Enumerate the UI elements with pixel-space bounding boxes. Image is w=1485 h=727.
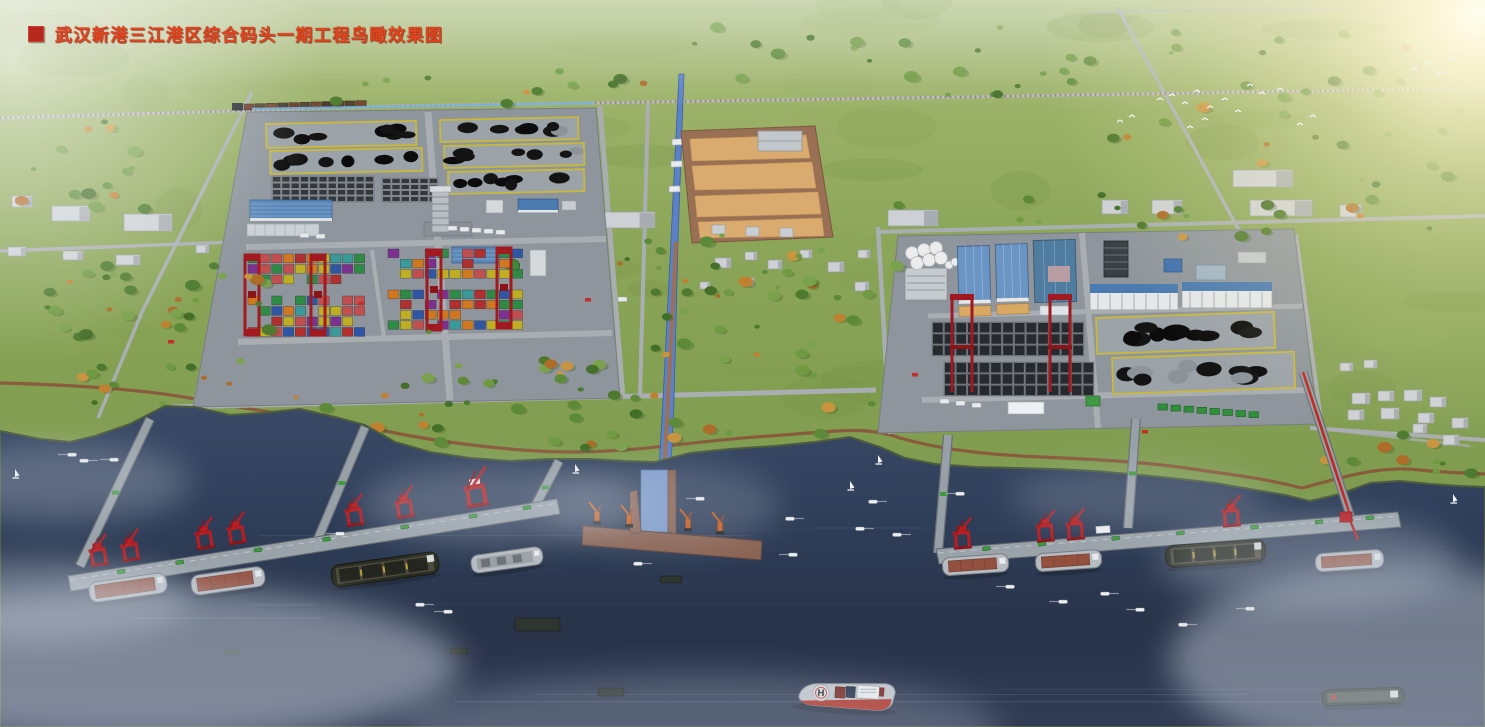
small-boat <box>1006 585 1015 589</box>
grid-base <box>382 178 438 202</box>
grass-patch <box>820 158 923 181</box>
container <box>260 265 270 274</box>
small-boat <box>1059 600 1068 604</box>
container <box>295 307 305 316</box>
grid-cell <box>1003 363 1013 372</box>
container <box>400 270 411 279</box>
container <box>331 328 341 337</box>
cargo <box>496 556 506 565</box>
car <box>912 373 918 377</box>
container <box>462 270 473 279</box>
hatch-cover <box>254 548 262 553</box>
container <box>331 275 341 284</box>
tree <box>834 295 842 301</box>
tree <box>644 238 652 244</box>
truck <box>448 226 457 231</box>
tree <box>807 341 816 347</box>
tree <box>795 349 808 358</box>
grid-cell <box>383 191 390 195</box>
building-side <box>727 259 731 268</box>
truck <box>972 403 981 408</box>
silo-building <box>905 268 947 300</box>
paved-lot <box>1048 266 1070 282</box>
tree <box>680 309 688 315</box>
rtg-beam <box>245 329 259 335</box>
tree <box>607 430 618 438</box>
grass-patch <box>991 171 1050 210</box>
tree <box>201 376 207 380</box>
grid-cell <box>338 177 345 182</box>
grid-cell <box>411 185 418 189</box>
container <box>272 265 282 274</box>
tree <box>544 359 557 368</box>
grid-cell <box>1027 323 1037 332</box>
grid-cell <box>319 190 326 195</box>
container <box>342 254 352 263</box>
tree <box>174 323 186 331</box>
tree <box>705 286 717 295</box>
wheelhouse <box>426 554 434 562</box>
container <box>499 270 510 279</box>
cargo <box>481 558 491 567</box>
pallet-stack <box>997 304 1029 315</box>
tree <box>1377 442 1392 453</box>
tree <box>893 201 904 209</box>
container <box>512 311 523 320</box>
grid-cell <box>347 177 354 182</box>
container <box>400 300 411 309</box>
field-shed <box>712 225 725 234</box>
container <box>295 296 305 305</box>
container <box>354 254 364 263</box>
dark-barge <box>660 576 682 583</box>
wheelhouse <box>255 570 262 577</box>
tree <box>1396 455 1409 465</box>
container <box>475 249 486 258</box>
tree <box>795 290 808 299</box>
green-truck <box>1197 407 1207 413</box>
building-side <box>840 263 844 272</box>
grid-cell <box>411 191 418 195</box>
container <box>331 265 341 274</box>
grid-cell <box>1003 323 1013 332</box>
grid-cell <box>1038 334 1048 343</box>
car <box>358 302 364 306</box>
grid-cell <box>957 386 967 395</box>
tree <box>834 314 846 323</box>
tree <box>868 401 876 407</box>
tree <box>817 247 825 253</box>
grid-cell <box>1026 363 1036 372</box>
grid-cell <box>1027 346 1037 355</box>
green-truck <box>1210 408 1220 414</box>
title-bar: 武汉新港三江港区综合码头一期工程鸟瞰效果图 <box>28 21 444 46</box>
tree <box>455 363 462 368</box>
tree <box>586 365 599 374</box>
truck <box>300 233 309 238</box>
grid-cell <box>1072 386 1082 395</box>
container <box>272 317 282 326</box>
container <box>475 300 486 309</box>
grid-cell <box>991 386 1001 395</box>
gantry-beam <box>950 345 974 349</box>
tree <box>255 301 262 306</box>
grid-cell <box>1060 386 1070 395</box>
container <box>342 265 352 274</box>
tree <box>381 393 389 399</box>
tree <box>662 352 670 358</box>
truck-on-trestle <box>339 481 346 485</box>
tree <box>890 261 904 271</box>
tree <box>615 442 628 451</box>
car <box>585 298 591 302</box>
tree <box>1433 469 1440 474</box>
tree <box>802 276 816 286</box>
grid-cell <box>310 177 317 182</box>
small-building <box>562 201 576 210</box>
grid-cell <box>430 179 437 183</box>
truck <box>316 234 325 239</box>
container <box>450 270 461 279</box>
tree <box>578 387 584 391</box>
tree <box>458 377 469 385</box>
silo <box>923 254 936 267</box>
container <box>272 296 282 305</box>
container <box>450 290 461 299</box>
grid-cell <box>1014 363 1024 372</box>
building-side <box>809 251 812 258</box>
grid-cell <box>1073 323 1083 332</box>
tree <box>548 436 561 445</box>
tree <box>617 261 623 265</box>
small-boat <box>444 610 453 614</box>
grid-cell <box>392 185 399 189</box>
tree <box>1023 195 1034 203</box>
tree <box>226 382 232 386</box>
grid-cell <box>420 197 427 201</box>
grid-cell <box>1014 386 1024 395</box>
tree <box>650 345 660 352</box>
small-boat <box>893 533 902 537</box>
green-kiosk <box>1086 396 1100 406</box>
cargo <box>512 554 522 563</box>
container <box>499 311 510 320</box>
rtg-beam <box>311 255 325 261</box>
gantry-beam <box>1048 294 1072 300</box>
container <box>512 321 523 330</box>
container <box>354 328 364 337</box>
tree <box>511 404 525 414</box>
grid-cell <box>1083 374 1093 383</box>
field-shed <box>746 227 759 236</box>
tree <box>419 413 424 417</box>
green-truck <box>1184 406 1194 412</box>
tree <box>422 373 435 382</box>
small-boat <box>416 603 425 607</box>
tree <box>667 433 681 443</box>
grid-cell <box>383 197 390 201</box>
tree <box>714 326 725 334</box>
container <box>283 317 293 326</box>
tree <box>186 364 196 371</box>
gate-building <box>530 250 546 276</box>
grid-cell <box>957 374 967 383</box>
container <box>400 311 411 320</box>
grid-cell <box>980 323 990 332</box>
grid-cell <box>1073 346 1083 355</box>
small-boat <box>789 553 798 557</box>
grid-cell <box>383 179 390 183</box>
container <box>295 317 305 326</box>
grid-cell <box>329 184 336 189</box>
grid-cell <box>392 179 399 183</box>
grid-cell <box>366 177 373 182</box>
grid-cell <box>366 184 373 189</box>
tree <box>568 401 580 410</box>
tree <box>719 233 725 237</box>
grass-patch <box>628 280 671 298</box>
tree <box>554 374 566 383</box>
field-shed <box>780 228 793 237</box>
grid-cell <box>411 179 418 183</box>
truck <box>472 228 481 233</box>
grid-cell <box>1003 386 1013 395</box>
grid-cell <box>366 190 373 195</box>
truck <box>618 297 627 302</box>
grid-cell <box>933 334 943 343</box>
truck <box>940 399 949 404</box>
container <box>400 290 411 299</box>
tree <box>795 253 802 258</box>
field-strip <box>692 162 816 190</box>
grid-cell <box>338 184 345 189</box>
container <box>260 307 270 316</box>
hatch <box>384 560 406 576</box>
container <box>295 328 305 337</box>
grid-cell <box>1014 374 1024 383</box>
container <box>272 275 282 284</box>
hatch <box>407 557 429 573</box>
grid-cell <box>347 190 354 195</box>
tree <box>767 291 780 301</box>
grid-cell <box>991 374 1001 383</box>
rtg-trolley <box>248 291 256 298</box>
grid-cell <box>402 179 409 183</box>
grid-cell <box>301 190 308 195</box>
container <box>413 311 424 320</box>
grid-cell <box>933 323 943 332</box>
tree <box>1440 461 1446 465</box>
container <box>450 321 461 330</box>
tree <box>236 358 244 364</box>
tree <box>483 379 494 387</box>
dark-barge <box>515 618 560 631</box>
container <box>342 317 352 326</box>
container <box>450 300 461 309</box>
grid-cell <box>1003 346 1013 355</box>
container <box>499 300 510 309</box>
rtg-trolley <box>500 284 508 291</box>
tree <box>625 257 630 261</box>
container <box>437 311 448 320</box>
container <box>462 249 473 258</box>
container <box>354 307 364 316</box>
container <box>462 321 473 330</box>
rtg-trolley <box>314 291 322 298</box>
tree <box>703 424 716 434</box>
grid-cell <box>319 177 326 182</box>
container <box>283 265 293 274</box>
rtg-beam <box>427 250 441 256</box>
grid-cell <box>356 177 363 182</box>
grid-cell <box>329 190 336 195</box>
grid-cell <box>1073 334 1083 343</box>
tree <box>724 289 733 296</box>
container <box>475 270 486 279</box>
port-aerial-rendering: H 武汉新港三江港区综合码头一期工程鸟瞰效果图 <box>0 0 1485 727</box>
hatch-cover <box>1112 536 1120 541</box>
container <box>248 265 258 274</box>
tree <box>677 338 692 349</box>
hatch-cover <box>1176 531 1184 536</box>
container <box>400 259 411 268</box>
building-side <box>778 261 782 269</box>
grid-cell <box>402 191 409 195</box>
container <box>450 311 461 320</box>
small-boat <box>869 500 878 504</box>
grid-cell <box>1027 334 1037 343</box>
grid-cell <box>356 190 363 195</box>
container <box>437 270 448 279</box>
container <box>283 307 293 316</box>
container <box>331 254 341 263</box>
building-side <box>867 251 870 258</box>
small-boat <box>956 492 965 496</box>
container <box>331 317 341 326</box>
silo <box>911 257 924 270</box>
building-side <box>924 211 938 226</box>
green-truck <box>1236 411 1246 417</box>
tree <box>718 355 730 363</box>
tree <box>655 247 665 254</box>
grid-cell <box>1083 386 1093 395</box>
container <box>512 249 523 258</box>
grid-cell <box>980 334 990 343</box>
lock-gate <box>669 186 680 192</box>
container <box>272 254 282 263</box>
grid-cell <box>1083 363 1093 372</box>
grid-cell <box>1037 386 1047 395</box>
tree <box>464 400 471 405</box>
grid-cell <box>402 197 409 201</box>
tree <box>782 269 793 277</box>
grid-cell <box>1003 374 1013 383</box>
grid-cell <box>347 184 354 189</box>
tree <box>862 290 874 299</box>
grid-cell <box>1037 363 1047 372</box>
container <box>413 259 424 268</box>
grass-patch <box>837 105 937 149</box>
truck <box>460 227 469 232</box>
truck <box>484 229 493 234</box>
small-boat <box>786 517 795 521</box>
grid-cell <box>420 185 427 189</box>
rendering-canvas: H <box>0 0 1485 727</box>
grid-cell <box>980 363 990 372</box>
grid-cell <box>991 323 1001 332</box>
grid-cell <box>1038 323 1048 332</box>
grid-cell <box>383 185 390 189</box>
tree <box>814 429 827 439</box>
green-truck <box>1158 404 1168 410</box>
grid-cell <box>991 346 1001 355</box>
tree <box>319 403 332 413</box>
tree <box>715 294 720 298</box>
grid-cell <box>338 197 345 202</box>
grid-cell <box>957 363 967 372</box>
container <box>413 321 424 330</box>
tree <box>656 266 662 270</box>
container <box>283 328 293 337</box>
title-marker <box>28 26 44 42</box>
grid-cell <box>1015 323 1025 332</box>
wheelhouse <box>999 558 1005 564</box>
car <box>168 340 174 344</box>
grid-cell <box>420 179 427 183</box>
container <box>283 275 293 284</box>
container <box>462 300 473 309</box>
tree <box>608 390 621 399</box>
rtg-beam <box>427 324 441 330</box>
tree <box>580 444 591 452</box>
tree <box>821 402 835 412</box>
hatch-cover <box>176 560 184 565</box>
truck-on-trestle <box>940 492 947 496</box>
tree <box>1433 459 1440 464</box>
grid-cell <box>933 346 943 355</box>
tree <box>762 270 768 274</box>
truck <box>956 401 965 406</box>
container <box>354 265 364 274</box>
container <box>272 307 282 316</box>
container <box>388 321 399 330</box>
container <box>512 270 523 279</box>
container <box>499 259 510 268</box>
container <box>283 254 293 263</box>
title-text: 武汉新港三江港区综合码头一期工程鸟瞰效果图 <box>55 21 444 46</box>
grid-cell <box>1037 374 1047 383</box>
small-boat <box>336 532 345 536</box>
grid-cell <box>1026 386 1036 395</box>
grid-cell <box>1038 346 1048 355</box>
tree <box>775 286 780 290</box>
grid-cell <box>991 363 1001 372</box>
canopy <box>1040 306 1070 315</box>
grid-cell <box>1060 374 1070 383</box>
tree <box>662 313 672 320</box>
coal-pad <box>440 117 578 142</box>
container <box>342 307 352 316</box>
tree <box>432 424 444 432</box>
rtg-beam <box>497 248 511 254</box>
tree <box>262 324 277 335</box>
rtg-trolley <box>430 286 438 293</box>
tree <box>294 395 299 399</box>
tree <box>86 369 98 378</box>
container <box>413 290 424 299</box>
grid-cell <box>956 334 966 343</box>
tree <box>847 315 861 325</box>
